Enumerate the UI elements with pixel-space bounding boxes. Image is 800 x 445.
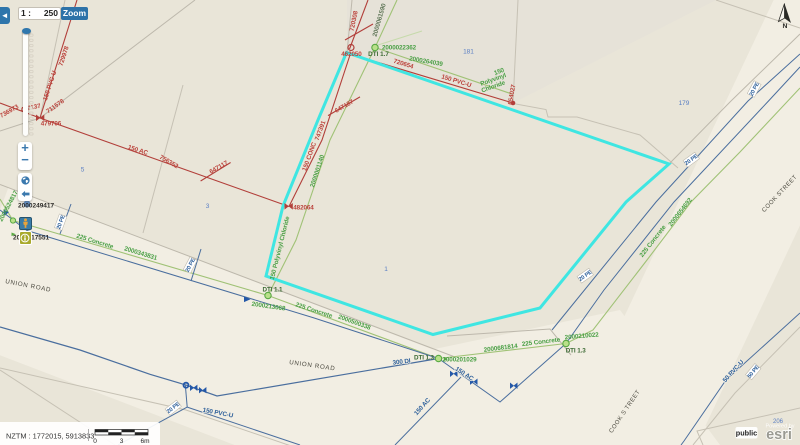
svg-text:DTI 1.3: DTI 1.3 <box>414 354 435 361</box>
svg-text:462050: 462050 <box>341 51 362 58</box>
svg-text:public: public <box>736 429 758 438</box>
svg-text:3: 3 <box>206 203 210 210</box>
svg-text:0: 0 <box>93 438 97 445</box>
svg-text:179: 179 <box>679 100 690 107</box>
svg-text:3: 3 <box>120 438 124 445</box>
svg-text:6m: 6m <box>140 438 149 445</box>
svg-text:DTI 1.7: DTI 1.7 <box>368 51 389 58</box>
svg-text:DTI 1.1: DTI 1.1 <box>263 286 284 293</box>
svg-text:479706: 479706 <box>41 121 62 128</box>
svg-text:esri: esri <box>766 427 792 443</box>
svg-text:482064: 482064 <box>293 205 314 212</box>
svg-text:2000249417: 2000249417 <box>18 203 55 210</box>
svg-text:N: N <box>783 23 788 30</box>
svg-text:181: 181 <box>463 48 474 55</box>
svg-text:2000201029: 2000201029 <box>442 357 477 364</box>
svg-text:5: 5 <box>81 167 85 174</box>
svg-text:1: 1 <box>384 266 388 273</box>
svg-text:NZTM : 1772015, 5913833: NZTM : 1772015, 5913833 <box>6 432 94 441</box>
svg-text:DTI 1.3: DTI 1.3 <box>566 348 587 355</box>
